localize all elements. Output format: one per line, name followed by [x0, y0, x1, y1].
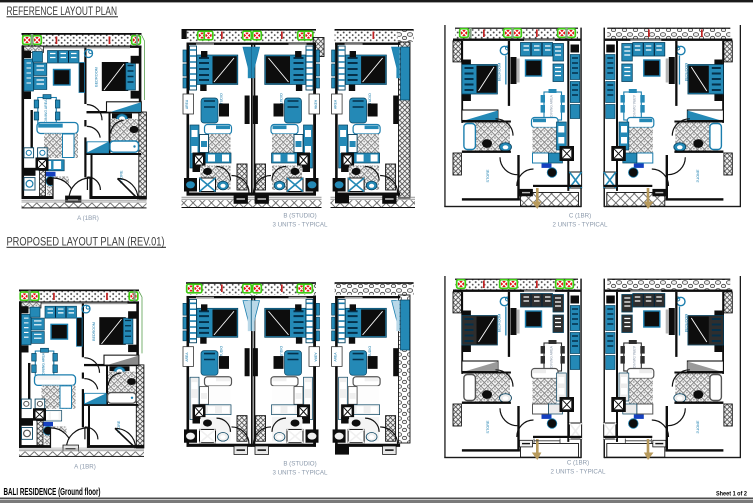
svg-text:C (1BR): C (1BR) [569, 213, 591, 220]
svg-text:BALI RESIDENCE (Ground floor): BALI RESIDENCE (Ground floor) [4, 487, 101, 498]
svg-text:B (STUDIO): B (STUDIO) [283, 213, 316, 220]
svg-text:Sheet 1 of 2: Sheet 1 of 2 [716, 492, 748, 498]
svg-text:2 UNITS - TYPICAL: 2 UNITS - TYPICAL [551, 469, 606, 476]
svg-text:PROPOSED LAYOUT PLAN (REV.01): PROPOSED LAYOUT PLAN (REV.01) [7, 237, 165, 249]
svg-text:2 UNITS - TYPICAL: 2 UNITS - TYPICAL [553, 222, 608, 229]
svg-text:3 UNITS - TYPICAL: 3 UNITS - TYPICAL [273, 470, 328, 477]
svg-text:REFERENCE LAYOUT PLAN: REFERENCE LAYOUT PLAN [7, 6, 118, 18]
svg-text:A (1BR): A (1BR) [74, 464, 96, 471]
svg-text:A (1BR): A (1BR) [77, 215, 99, 222]
svg-text:C (1BR): C (1BR) [567, 460, 589, 467]
svg-text:B (STUDIO): B (STUDIO) [283, 461, 316, 468]
svg-text:3 UNITS - TYPICAL: 3 UNITS - TYPICAL [273, 222, 328, 229]
